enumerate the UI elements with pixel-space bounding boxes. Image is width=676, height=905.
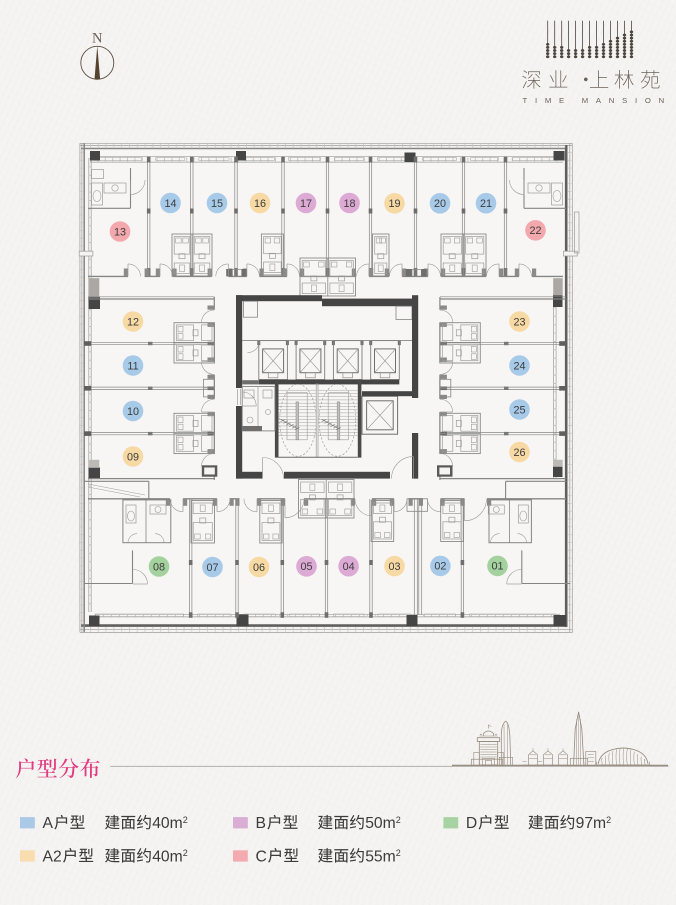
svg-text:03: 03 bbox=[388, 561, 400, 573]
svg-text:09: 09 bbox=[127, 451, 139, 463]
svg-text:21: 21 bbox=[480, 198, 492, 210]
svg-text:06: 06 bbox=[253, 562, 265, 574]
svg-text:14: 14 bbox=[164, 198, 176, 210]
svg-text:05: 05 bbox=[300, 561, 312, 573]
svg-text:24: 24 bbox=[513, 360, 525, 372]
svg-text:D: D bbox=[466, 815, 477, 832]
svg-text:19: 19 bbox=[388, 198, 400, 210]
svg-text:40m: 40m bbox=[152, 815, 183, 832]
svg-text:26: 26 bbox=[513, 447, 525, 459]
svg-text:20: 20 bbox=[434, 198, 446, 210]
svg-text:23: 23 bbox=[513, 316, 525, 328]
svg-text:2: 2 bbox=[396, 848, 401, 858]
svg-text:22: 22 bbox=[529, 225, 541, 237]
svg-text:55m: 55m bbox=[365, 848, 396, 865]
svg-text:18: 18 bbox=[343, 198, 355, 210]
svg-text:02: 02 bbox=[434, 561, 446, 573]
svg-text:C: C bbox=[256, 848, 267, 865]
svg-text:A2: A2 bbox=[43, 848, 62, 865]
svg-text:2: 2 bbox=[183, 815, 188, 825]
svg-text:12: 12 bbox=[127, 316, 139, 328]
svg-text:08: 08 bbox=[153, 561, 165, 573]
svg-text:A: A bbox=[43, 815, 54, 832]
svg-text:50m: 50m bbox=[365, 815, 396, 832]
svg-text:11: 11 bbox=[127, 360, 138, 372]
svg-text:01: 01 bbox=[491, 561, 503, 573]
svg-text:25: 25 bbox=[513, 404, 525, 416]
svg-text:2: 2 bbox=[183, 848, 188, 858]
svg-text:2: 2 bbox=[606, 815, 611, 825]
svg-text:40m: 40m bbox=[152, 848, 183, 865]
svg-text:13: 13 bbox=[114, 226, 126, 238]
svg-text:N: N bbox=[92, 31, 103, 47]
svg-text:04: 04 bbox=[343, 561, 355, 573]
svg-text:15: 15 bbox=[211, 198, 223, 210]
svg-text:07: 07 bbox=[206, 562, 218, 574]
svg-text:16: 16 bbox=[254, 198, 266, 210]
svg-text:B: B bbox=[256, 815, 266, 832]
svg-text:97m: 97m bbox=[576, 815, 607, 832]
svg-text:10: 10 bbox=[127, 406, 139, 418]
svg-text:TIME MANSION: TIME MANSION bbox=[523, 96, 672, 105]
svg-text:17: 17 bbox=[300, 198, 312, 210]
svg-text:2: 2 bbox=[396, 815, 401, 825]
